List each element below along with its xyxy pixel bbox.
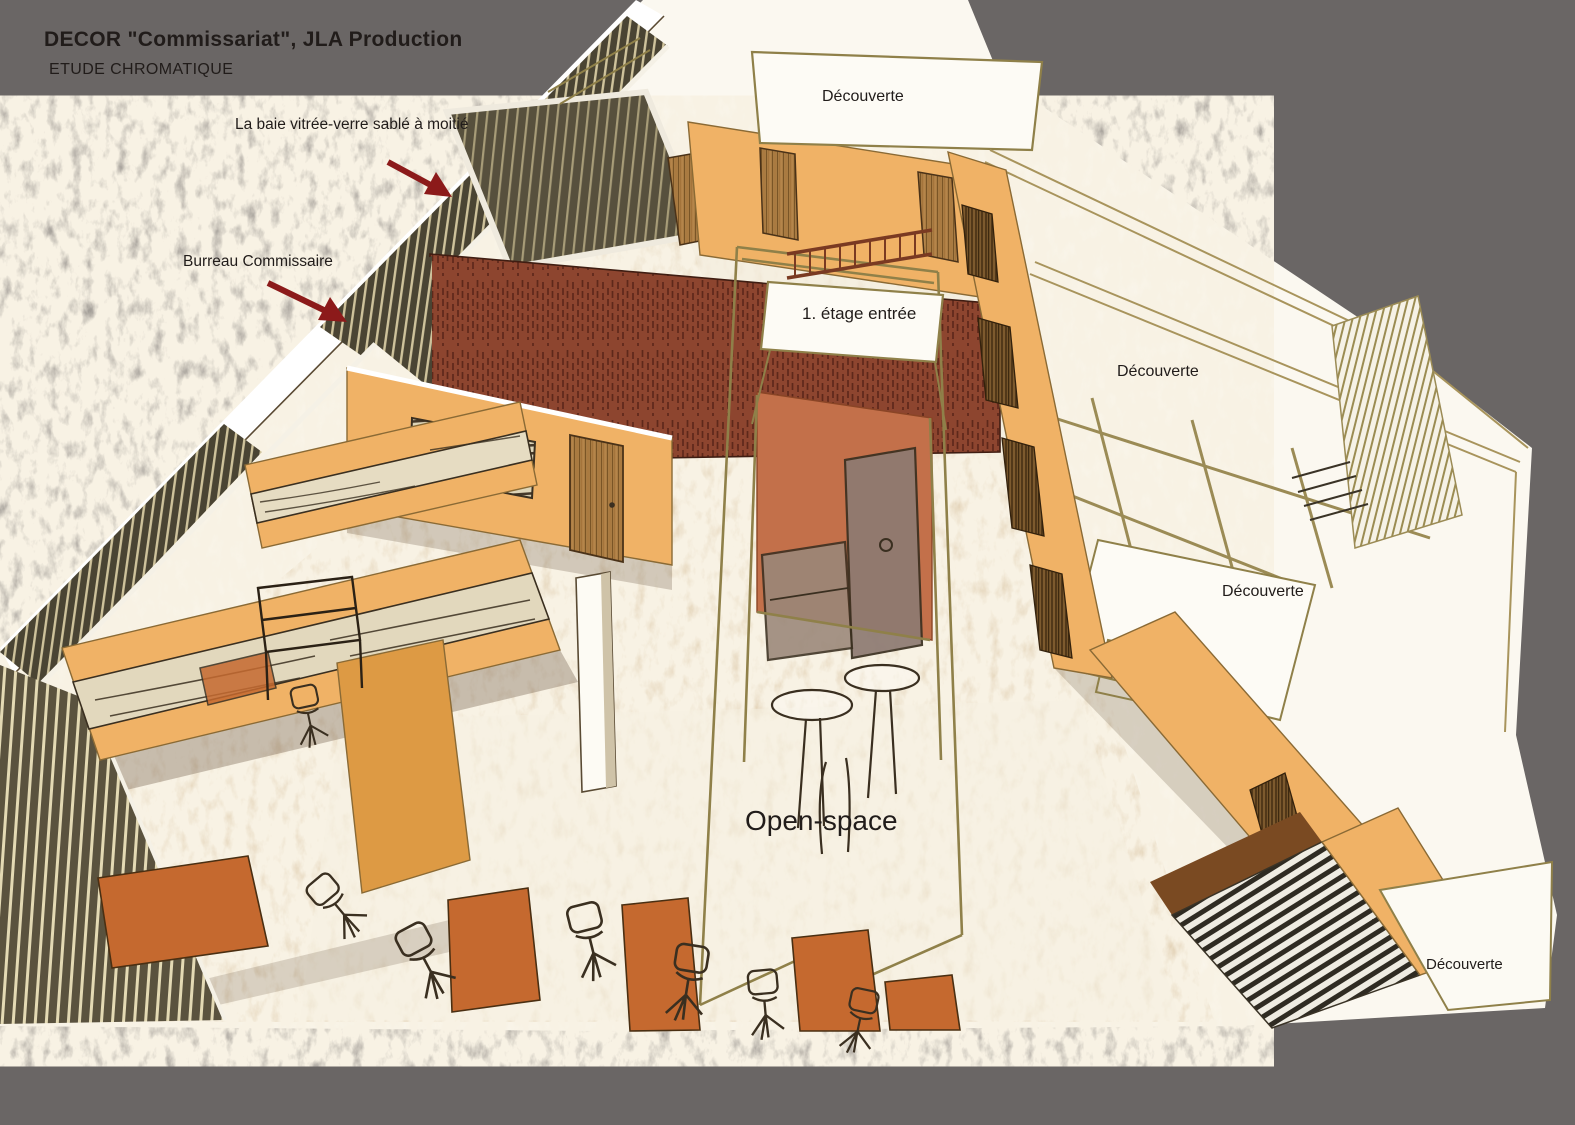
set-design-board: DECOR "Commissariat", JLA Production ETU… bbox=[0, 0, 1575, 1125]
label-open-space: Open-space bbox=[745, 806, 898, 837]
cabinet-sketch bbox=[845, 448, 922, 658]
corridor-door-2 bbox=[918, 172, 958, 262]
drawing-subtitle: ETUDE CHROMATIQUE bbox=[49, 61, 233, 79]
desk bbox=[622, 898, 700, 1031]
corridor-door-1 bbox=[760, 148, 798, 240]
desk bbox=[885, 975, 960, 1030]
annotation-bureau-commissaire: Burreau Commissaire bbox=[183, 253, 333, 270]
desk bbox=[448, 888, 540, 1012]
label-decouverte-right-upper: Découverte bbox=[1117, 363, 1199, 381]
label-etage-entree: 1. étage entrée bbox=[802, 305, 916, 324]
door-handle bbox=[609, 502, 615, 508]
label-decouverte-top: Découverte bbox=[822, 88, 904, 106]
annotation-baie-vitree: La baie vitrée-verre sablé à moitié bbox=[235, 116, 468, 133]
label-decouverte-right-mid: Découverte bbox=[1222, 583, 1304, 601]
office-door bbox=[570, 435, 623, 562]
label-decouverte-bottom-right: Découverte bbox=[1426, 957, 1503, 974]
desk bbox=[792, 930, 880, 1031]
pillar bbox=[576, 572, 616, 792]
sofa-sketch bbox=[762, 542, 852, 660]
set-drawing bbox=[0, 0, 1575, 1125]
drawing-title: DECOR "Commissariat", JLA Production bbox=[44, 28, 463, 51]
